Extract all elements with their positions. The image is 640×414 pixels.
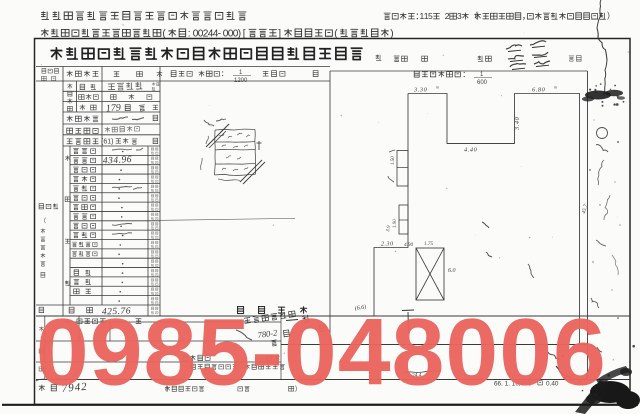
svg-text:：: ：	[462, 70, 470, 79]
svg-text::: :	[188, 28, 191, 39]
svg-text:[: [	[243, 28, 246, 39]
svg-text:（: （	[40, 218, 46, 225]
svg-text:0985-048006: 0985-048006	[36, 300, 607, 406]
svg-text:3.30: 3.30	[413, 87, 428, 94]
svg-text:600: 600	[477, 80, 488, 86]
svg-text:4.90: 4.90	[404, 241, 413, 248]
svg-text:：: ：	[221, 69, 229, 78]
svg-text:-: -	[218, 28, 221, 39]
svg-text:6.0: 6.0	[448, 268, 456, 274]
svg-text:]: ]	[278, 28, 281, 39]
svg-text:): )	[238, 28, 241, 39]
svg-text:5: 5	[428, 11, 433, 21]
svg-text:1.90: 1.90	[393, 219, 398, 228]
svg-text:m: m	[554, 85, 557, 90]
svg-text:2.30: 2.30	[381, 242, 394, 248]
svg-text:）: ）	[607, 11, 616, 21]
svg-text:6.80: 6.80	[532, 87, 546, 94]
svg-text:1.75: 1.75	[424, 241, 433, 247]
svg-text:434.96: 434.96	[103, 155, 133, 167]
svg-text:4.40: 4.40	[464, 147, 478, 154]
svg-text:3: 3	[457, 11, 462, 21]
svg-text:1200: 1200	[234, 78, 248, 84]
svg-text:2: 2	[445, 11, 450, 21]
svg-text:179: 179	[105, 102, 121, 114]
svg-text:m: m	[436, 85, 439, 90]
svg-text:1.50: 1.50	[391, 156, 396, 165]
svg-text:(61): (61)	[101, 139, 113, 146]
svg-text:3.40: 3.40	[514, 116, 521, 131]
svg-text:): )	[390, 28, 393, 39]
